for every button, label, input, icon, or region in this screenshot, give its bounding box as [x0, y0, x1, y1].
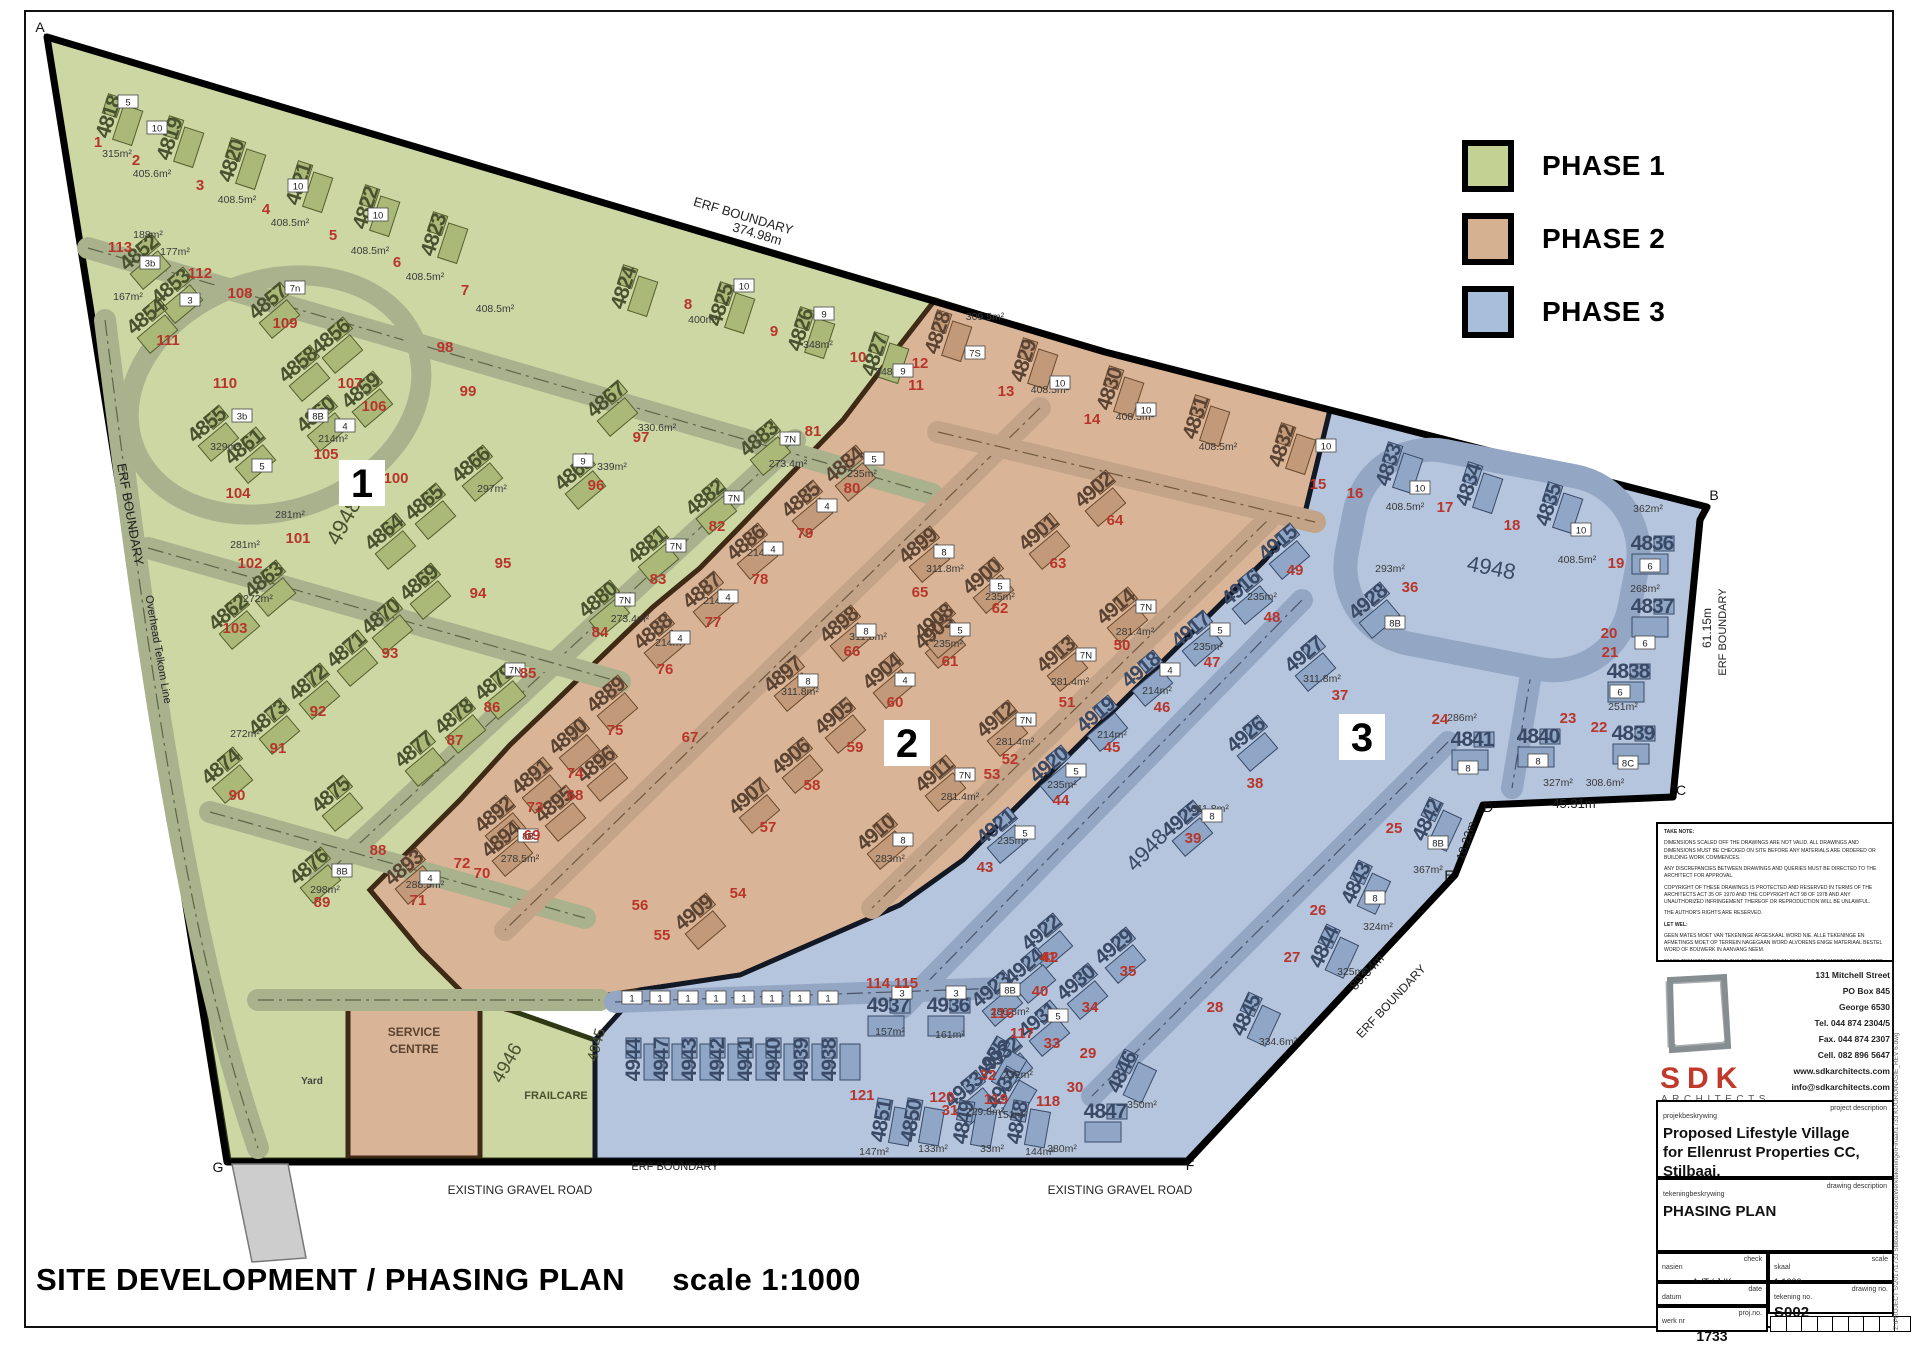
sequence-number: 82 — [709, 518, 726, 535]
unit-type-chip-label: 5 — [1073, 767, 1078, 778]
sequence-number: 95 — [495, 555, 512, 572]
unit-type-chip-label: 3b — [237, 412, 248, 423]
corner-letter: G — [213, 1159, 224, 1175]
sequence-number: 21 — [1602, 644, 1619, 661]
erf-number: 4941 — [734, 1037, 757, 1081]
erf-area: 334.6m² — [1259, 1036, 1298, 1048]
projno-label-en: proj.no. — [1739, 1310, 1762, 1317]
unit-type-chip-label: 10 — [1141, 406, 1152, 417]
unit-type-chip-label: 6 — [1617, 688, 1622, 699]
sequence-number: 100 — [383, 470, 408, 487]
unit-type-chip-label: 8 — [900, 836, 905, 847]
erf-area: 268m² — [1630, 583, 1660, 595]
sdk-logo-icon — [1658, 968, 1738, 1060]
sequence-number: 52 — [1002, 751, 1019, 768]
erf-area: 281.4m² — [996, 736, 1035, 748]
sequence-number: 91 — [270, 740, 287, 757]
erf-area: 235m² — [933, 638, 963, 650]
project-label-af: projekbeskrywing — [1663, 1113, 1717, 1120]
sequence-number: 11 — [908, 377, 924, 394]
erf-area: 408.5m² — [476, 303, 515, 315]
erf-area: 327m² — [1543, 777, 1573, 789]
erf-area: 329m² — [210, 441, 240, 453]
firm-contact-line: Tel. 044 874 2304/5 — [1760, 1018, 1890, 1028]
service-centre-block — [348, 995, 480, 1158]
sequence-number: 114 — [866, 975, 891, 992]
erf-area: 272m² — [230, 728, 260, 740]
erf-area: 311.8m² — [1303, 673, 1341, 685]
erf-area: 367m² — [1413, 864, 1443, 876]
unit-type-chip-label: 10 — [739, 282, 750, 293]
sequence-number: 16 — [1347, 485, 1364, 502]
scale-label-af: skaal — [1774, 1264, 1790, 1271]
unit-type-chip-label: 9 — [900, 367, 905, 378]
sequence-number: 2 — [132, 152, 140, 169]
erf-area: 362m² — [1633, 503, 1663, 515]
sequence-number: 28 — [1207, 999, 1224, 1016]
unit-type-chip-label: 8 — [805, 677, 810, 688]
sequence-number: 115 — [894, 975, 918, 992]
unit-type-chip-label: 8B — [1389, 619, 1401, 630]
sequence-number: 38 — [1247, 775, 1264, 792]
erf-area: 273.4m² — [769, 458, 808, 470]
sequence-number: 56 — [632, 897, 649, 914]
sequence-number: 109 — [272, 315, 297, 332]
unit-type-chip-label: 3 — [187, 296, 192, 307]
sequence-number: 32 — [980, 1067, 997, 1084]
check-label-en: check — [1744, 1256, 1762, 1263]
unit-type-chip-label: 7N — [670, 542, 682, 553]
sequence-number: 74 — [567, 765, 584, 782]
sequence-number: 80 — [844, 480, 861, 497]
unit-type-chip-label: 8 — [1465, 764, 1470, 775]
sequence-number: 9 — [770, 323, 778, 340]
sequence-number: 58 — [804, 777, 821, 794]
erf-area: 144m² — [1025, 1146, 1055, 1158]
sequence-number: 76 — [657, 661, 674, 678]
unit-type-chip-label: 8 — [1535, 757, 1540, 768]
unit-type-chip-label: 5 — [1055, 1012, 1060, 1023]
sequence-number: 46 — [1154, 699, 1171, 716]
unit-type-chip-label: 7N — [728, 494, 740, 505]
unit-type-chip-label: 1 — [713, 994, 718, 1005]
erf-area: 408.5m² — [271, 217, 310, 229]
erf-number: 4841 — [1451, 728, 1495, 751]
sequence-number: 104 — [225, 485, 251, 502]
erf-area: 339m² — [597, 461, 627, 473]
unit-type-chip-label: 8 — [1209, 812, 1214, 823]
legend-label: PHASE 2 — [1542, 223, 1665, 255]
unit-type-chip-label: 1 — [769, 994, 774, 1005]
sequence-number: 65 — [912, 584, 929, 601]
unit-type-chip-label: 5 — [957, 626, 962, 637]
sequence-number: 97 — [633, 429, 650, 446]
unit-type-chip-label: 7N — [1140, 603, 1152, 614]
title-block: projekbeskrywing project description Pro… — [1656, 1100, 1894, 1330]
corner-letter: B — [1709, 487, 1718, 503]
scale-bar — [1770, 1316, 1910, 1332]
scale-label-en: scale — [1872, 1256, 1888, 1263]
unit-type-chip-label: 5 — [1217, 626, 1222, 637]
sequence-number: 29 — [1080, 1045, 1097, 1062]
legend-label: PHASE 3 — [1542, 296, 1665, 328]
erf-area: 408.5m² — [351, 245, 390, 257]
firm-contact-line: PO Box 845 — [1760, 986, 1890, 996]
sequence-number: 84 — [592, 624, 609, 641]
sequence-number: 55 — [654, 927, 671, 944]
erf-area: 161m² — [935, 1029, 965, 1041]
legend-item: PHASE 1 — [1462, 140, 1665, 192]
drawing-description: PHASING PLAN — [1663, 1203, 1887, 1222]
unit-type-chip-label: 9 — [580, 457, 585, 468]
sequence-number: 70 — [474, 865, 491, 882]
corner-letter: C — [1676, 782, 1686, 798]
erf-area: 235m² — [1247, 591, 1277, 603]
erf-area: 281m² — [275, 509, 305, 521]
sequence-number: 42 — [1042, 949, 1059, 966]
sequence-number: 30 — [1067, 1079, 1084, 1096]
unit-type-chip-label: 7N — [959, 771, 971, 782]
projno-value: 1733 — [1662, 1328, 1762, 1344]
phase-number: 3 — [1351, 716, 1373, 760]
erf-number: 4940 — [762, 1038, 785, 1081]
erf-number: 4942 — [706, 1038, 729, 1081]
sequence-number: 23 — [1560, 710, 1577, 727]
sequence-number: 69 — [524, 827, 541, 844]
sequence-number: 13 — [998, 383, 1015, 400]
erf-area: 177m² — [160, 246, 190, 258]
phase-number: 1 — [351, 462, 373, 506]
erf-number: 4944 — [622, 1037, 645, 1081]
note-paragraph: COPYRIGHT OF THESE DRAWINGS IS PROTECTED… — [1664, 885, 1886, 907]
firm-contact-line: George 6530 — [1760, 1002, 1890, 1012]
sequence-number: 49 — [1287, 562, 1304, 579]
sequence-number: 14 — [1084, 411, 1101, 428]
firm-name: SDK — [1660, 1062, 1744, 1096]
sequence-number: 71 — [410, 892, 427, 909]
sequence-number: 59 — [847, 739, 864, 756]
sequence-number: 118 — [1036, 1093, 1060, 1110]
sequence-number: 72 — [454, 855, 471, 872]
sequence-number: 36 — [1402, 579, 1419, 596]
sequence-number: 33 — [1044, 1035, 1061, 1052]
boundary-label: 61.15m — [1700, 608, 1714, 648]
unit-type-chip-label: 8B — [1004, 986, 1016, 997]
unit-type-chip-label: 4 — [1167, 666, 1172, 677]
boundary-label: ERF BOUNDARY — [631, 1161, 719, 1173]
erf-area: 315m² — [102, 148, 132, 160]
legend-item: PHASE 2 — [1462, 213, 1665, 265]
legend-item: PHASE 3 — [1462, 286, 1665, 338]
erf-area: 167m² — [113, 291, 143, 303]
sequence-number: 67 — [682, 729, 699, 746]
unit-type-chip-label: 10 — [293, 182, 304, 193]
corner-letter: D — [1483, 799, 1493, 815]
erf-area: 297m² — [477, 483, 507, 495]
unit-type-chip-label: 6 — [1642, 639, 1647, 650]
erf-number: 4840 — [1517, 725, 1560, 748]
sequence-number: 107 — [337, 375, 362, 392]
firm-contact-line: 131 Mitchell Street — [1760, 970, 1890, 980]
boundary-label: 45.31m — [1552, 796, 1595, 811]
phase-legend: PHASE 1PHASE 2PHASE 3 — [1462, 140, 1665, 359]
erf-area: 324m² — [1363, 921, 1393, 933]
erf-number: 4947 — [650, 1038, 673, 1081]
boundary-label: ERF BOUNDARY — [1717, 588, 1729, 676]
sequence-number: 119 — [984, 1091, 1008, 1108]
sequence-number: 50 — [1114, 637, 1131, 654]
sequence-number: 7 — [461, 282, 469, 299]
unit-type-chip-label: 8 — [941, 548, 946, 559]
sequence-number: 63 — [1050, 555, 1067, 572]
note-paragraph: TAKE NOTE: — [1664, 829, 1886, 836]
erf-area: 272m² — [243, 593, 273, 605]
sequence-number: 121 — [849, 1087, 874, 1104]
sequence-number: 6 — [393, 254, 401, 271]
erf-area: 157m² — [875, 1026, 905, 1038]
erf-area: 188m² — [133, 229, 163, 241]
sequence-number: 98 — [437, 339, 454, 356]
erf-area: 232m² — [1003, 1069, 1033, 1081]
unit-type-chip-label: 4 — [770, 545, 775, 556]
erf-number: 4847 — [1084, 1100, 1127, 1123]
erf-area: 283m² — [875, 853, 905, 865]
drawing-sheet: 4818481948204821482248234824482548264827… — [0, 0, 1920, 1357]
special-area-label: CENTRE — [389, 1042, 438, 1056]
unit-type-chip-label: 10 — [373, 211, 384, 222]
project-label-en: project description — [1830, 1105, 1887, 1112]
erf-number: 4938 — [818, 1037, 841, 1081]
erf-number: 4939 — [790, 1038, 813, 1081]
sequence-number: 75 — [607, 722, 624, 739]
erf-area: 408.5m² — [1199, 441, 1238, 453]
boundary-label: EXISTING GRAVEL ROAD — [1048, 1183, 1193, 1197]
corner-letter: E — [1444, 867, 1453, 883]
sequence-number: 66 — [844, 643, 861, 660]
unit-type-chip-label: 10 — [152, 124, 163, 135]
sequence-number: 92 — [310, 703, 327, 720]
sequence-number: 15 — [1310, 476, 1327, 493]
sequence-number: 40 — [1032, 983, 1049, 1000]
sequence-number: 45 — [1104, 739, 1121, 756]
unit-type-chip-label: 4 — [427, 874, 432, 885]
sequence-number: 68 — [567, 787, 584, 804]
sequence-number: 48 — [1264, 609, 1281, 626]
sequence-number: 19 — [1608, 555, 1625, 572]
note-paragraph: DIMENSIONS SCALED OFF THE DRAWINGS ARE N… — [1664, 840, 1886, 862]
erf-area: 281.4m² — [941, 791, 980, 803]
unit-type-chip-label: 3 — [953, 989, 958, 1000]
sequence-number: 8 — [684, 296, 692, 313]
sequence-number: 61 — [942, 653, 959, 670]
sequence-number: 10 — [850, 349, 867, 366]
sequence-number: 53 — [984, 766, 1001, 783]
sequence-number: 77 — [705, 614, 722, 631]
erf-area: 147m² — [859, 1146, 889, 1158]
drawing-label-af: tekeningbeskrywing — [1663, 1191, 1724, 1198]
sequence-number: 73 — [527, 799, 544, 816]
sequence-number: 62 — [992, 600, 1009, 617]
sequence-number: 37 — [1332, 687, 1349, 704]
erf-area: 214m² — [1142, 685, 1172, 697]
erf-number: 4838 — [1607, 660, 1651, 683]
unit-type-chip-label: 1 — [825, 994, 830, 1005]
erf-number: 4837 — [1631, 595, 1674, 618]
sequence-number: 44 — [1053, 792, 1070, 809]
sequence-number: 86 — [484, 699, 501, 716]
sequence-number: 87 — [447, 732, 464, 749]
drawing-label-en: drawing description — [1827, 1183, 1887, 1190]
sequence-number: 12 — [912, 355, 929, 372]
sequence-number: 51 — [1059, 694, 1076, 711]
date-label-en: date — [1748, 1286, 1762, 1293]
erf-area: 33m² — [980, 1143, 1004, 1155]
sequence-number: 22 — [1591, 719, 1608, 736]
special-area-label: Yard — [301, 1076, 323, 1087]
unit-type-chip-label: 4 — [342, 422, 347, 433]
unit-type-chip-label: 8B — [312, 412, 324, 423]
sequence-number: 57 — [760, 819, 777, 836]
sequence-number: 110 — [213, 375, 237, 392]
legend-label: PHASE 1 — [1542, 150, 1665, 182]
unit-type-chip-label: 4 — [902, 676, 907, 687]
sequence-number: 34 — [1082, 999, 1099, 1016]
sequence-number: 18 — [1504, 517, 1521, 534]
unit-type-chip-label: 1 — [629, 994, 634, 1005]
firm-contact-line: www.sdkarchitects.com — [1760, 1066, 1890, 1076]
date-label-af: datum — [1662, 1294, 1681, 1301]
erf-area: 408.5m² — [1386, 501, 1425, 513]
unit-type-chip-label: 6 — [1647, 562, 1652, 573]
unit-type-chip-label: 1 — [797, 994, 802, 1005]
sequence-number: 117 — [1010, 1025, 1034, 1042]
unit-type-chip-label: 8 — [1372, 894, 1377, 905]
erf-area: 350m² — [1127, 1099, 1157, 1111]
sequence-number: 101 — [285, 530, 310, 547]
legend-swatch-phase-1 — [1462, 140, 1514, 192]
sequence-number: 83 — [650, 571, 667, 588]
unit-type-chip-label: 1 — [657, 994, 662, 1005]
firm-contact-line: Cell. 082 896 5647 — [1760, 1050, 1890, 1060]
erf-area: 235m² — [1047, 779, 1077, 791]
erf-number: 4836 — [1631, 532, 1674, 555]
unit-type-chip-label: 5 — [259, 462, 264, 473]
note-paragraph: GEEN MATES MOET VAN TEKENINGE AFGESKAAL … — [1664, 933, 1886, 955]
erf-area: 293m² — [1375, 563, 1405, 575]
project-description: Proposed Lifestyle Village for Ellenrust… — [1663, 1125, 1863, 1181]
unit-type-chip-label: 5 — [997, 582, 1002, 593]
sequence-number: 3 — [196, 177, 204, 194]
legend-swatch-phase-2 — [1462, 213, 1514, 265]
sequence-number: 112 — [188, 265, 212, 282]
file-path: Z:\PROJECT S\2017\1733 Stilbaai Aftree-o… — [1893, 1033, 1900, 1330]
erf-area: 273.4m² — [611, 613, 650, 625]
unit-type-chip-label: 7N — [1020, 716, 1032, 727]
sequence-number: 54 — [730, 885, 747, 902]
sequence-number: 5 — [329, 227, 337, 244]
legend-swatch-phase-3 — [1462, 286, 1514, 338]
unit-type-chip-label: 7n — [290, 284, 301, 295]
sequence-number: 94 — [470, 585, 487, 602]
dwgno-label-af: tekening no. — [1774, 1294, 1812, 1301]
unit-type-chip-label: 10 — [1321, 442, 1332, 453]
erf-area: 133m² — [918, 1143, 948, 1155]
sequence-number: 79 — [797, 525, 814, 542]
projno-label-af: werk nr — [1662, 1318, 1685, 1325]
special-area-label: SERVICE — [388, 1025, 440, 1039]
note-paragraph: ENIGE TEENSTRYDIGHEID TUSSEN TEKENINGE E… — [1664, 959, 1886, 963]
sequence-number: 120 — [929, 1089, 954, 1106]
sequence-number: 39 — [1185, 830, 1202, 847]
erf-area: 348m² — [803, 339, 833, 351]
erf-area: 151m² — [997, 1109, 1027, 1121]
phase-number: 2 — [896, 722, 918, 766]
sequence-number: 81 — [805, 423, 822, 440]
erf-area: 286m² — [1447, 712, 1477, 724]
sheet-title: SITE DEVELOPMENT / PHASING PLAN scale 1:… — [36, 1262, 861, 1298]
erf-area: 405.6m² — [133, 168, 172, 180]
erf-area: 235m² — [1193, 641, 1223, 653]
unit-type-chip-label: 7N — [1080, 651, 1092, 662]
corner-letter: F — [1186, 1157, 1195, 1173]
sequence-number: 27 — [1284, 949, 1301, 966]
check-label-af: nasien — [1662, 1264, 1683, 1271]
sequence-number: 25 — [1386, 820, 1403, 837]
corner-letter: A — [35, 19, 45, 35]
note-paragraph: ANY DISCREPANCIES BETWEEN DRAWINGS AND Q… — [1664, 866, 1886, 881]
sequence-number: 1 — [94, 134, 102, 151]
firm-contact-line: info@sdkarchitects.com — [1760, 1082, 1890, 1092]
erf-area: 235m² — [847, 468, 877, 480]
sequence-number: 24 — [1432, 711, 1449, 728]
erf-number: 4839 — [1612, 722, 1655, 745]
sequence-number: 102 — [237, 555, 262, 572]
note-paragraph: LET WEL: — [1664, 922, 1886, 929]
unit-type-chip-label: 10 — [1415, 484, 1426, 495]
sequence-number: 78 — [752, 571, 769, 588]
unit-type-chip-label: 3b — [145, 259, 156, 270]
unit-type-chip-label: 4 — [824, 502, 829, 513]
firm-contact-line: Fax. 044 874 2307 — [1760, 1034, 1890, 1044]
unit-type-chip-label: 10 — [1055, 379, 1066, 390]
erf-area: 400m² — [688, 314, 718, 326]
special-area-label: FRAILCARE — [524, 1090, 588, 1102]
erf-area: 308.6m² — [1586, 777, 1625, 789]
unit-type-chip-label: 7S — [969, 349, 981, 360]
unit-type-chip-label: 7N — [619, 596, 631, 607]
erf-area: 309.5m² — [966, 311, 1005, 323]
architect-block: SDK ARCHITECTS 131 Mitchell StreetPO Box… — [1656, 966, 1894, 1100]
erf-area: 281.4m² — [1051, 676, 1090, 688]
notes-block: TAKE NOTE:DIMENSIONS SCALED OFF THE DRAW… — [1656, 822, 1894, 962]
sequence-number: 116 — [990, 1005, 1014, 1022]
sequence-number: 88 — [370, 842, 387, 859]
unit-type-chip-label: 8 — [863, 627, 868, 638]
boundary-label: EXISTING GRAVEL ROAD — [448, 1183, 593, 1197]
sequence-number: 20 — [1601, 625, 1618, 642]
sequence-number: 103 — [222, 620, 247, 637]
unit-type-chip-label: 9 — [821, 310, 826, 321]
unit-type-chip-label: 1 — [741, 994, 746, 1005]
unit-type-chip-label: 8C — [1622, 759, 1634, 770]
sequence-number: 89 — [314, 894, 331, 911]
unit-type-chip-label: 10 — [1576, 526, 1587, 537]
sheet-title-text: SITE DEVELOPMENT / PHASING PLAN — [36, 1262, 625, 1297]
sequence-number: 43 — [977, 859, 994, 876]
erf-area: 408.5m² — [1558, 554, 1597, 566]
sequence-number: 93 — [382, 645, 399, 662]
sequence-number: 99 — [460, 383, 477, 400]
